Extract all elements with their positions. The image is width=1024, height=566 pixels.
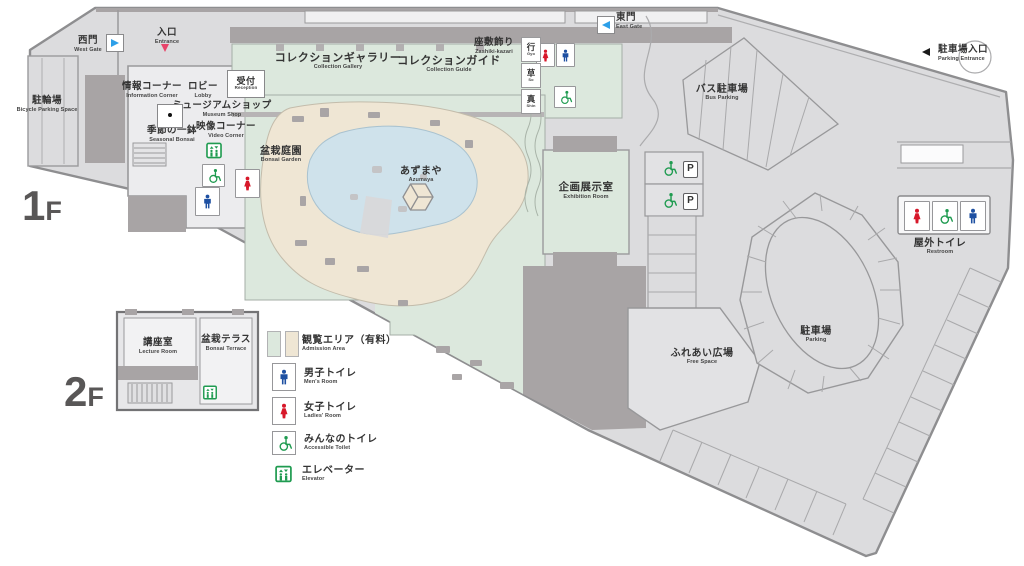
label-bonsai-garden: 盆栽庭園 Bonsai Garden [260,146,302,163]
parking-p-icon: P [683,193,698,210]
legend-ladies-room: 女子トイレ Ladies' Room [272,397,397,425]
label-bus-parking: バス駐車場 Bus Parking [696,84,749,101]
accessible-parking-icon [661,192,678,209]
ladies-room-icon [904,201,930,231]
legend-admission-area: 観覧エリア（有料） Admission Area [272,331,397,357]
elevator-icon [272,461,294,487]
legend-mens-room: 男子トイレ Men's Room [272,363,397,391]
label-bicycle-parking: 駐輪場 Bicycle Parking Space [17,96,78,113]
label-parking: 駐車場 Parking [800,326,832,343]
parking-column [648,216,696,310]
elevator-icon [205,140,223,161]
museum-floor-map: 受付 Reception 行 Gyo 草 So 真 Shin P P 1F 2F… [0,0,1024,566]
label-bonsai-terrace: 盆栽テラス Bonsai Terrace [201,335,251,352]
mens-room-icon [195,187,220,216]
exhibition-room-area [543,150,629,254]
room-gyo: 行 Gyo [521,37,541,62]
label-seasonal-bonsai: 季節の一鉢 Seasonal Bonsai [147,126,197,143]
accessible-toilet-icon [202,164,225,187]
elevator-icon [202,383,218,402]
label-lobby: ロビー Lobby [188,82,218,99]
label-entrance: 入口 Entrance [155,28,179,45]
accessible-toilet-icon [554,86,576,108]
reception-box: 受付 Reception [227,70,265,98]
pond [307,126,477,235]
west-gate-arrow-icon [111,39,119,47]
admission-beige-swatch [285,331,299,357]
admission-green-swatch [267,331,281,357]
floor-2f-label: 2F [64,368,104,416]
floor2-plan [117,309,258,410]
ladies-room-icon [235,169,260,198]
label-zashiki-kazari: 座敷飾り Zashiki-kazari [474,38,514,55]
east-gate-marker [597,16,615,34]
stairs-1f [133,143,166,166]
label-collection-guide: コレクションガイド Collection Guide [397,55,501,73]
map-legend: 観覧エリア（有料） Admission Area 男子トイレ Men's Roo… [272,331,397,487]
label-exhibition-room: 企画展示室 Exhibition Room [559,182,614,200]
legend-accessible-toilet: みんなのトイレ Accessible Toilet [272,431,397,455]
label-outdoor-toilet: 屋外トイレ Restroom [914,238,967,255]
room-shin: 真 Shin [521,89,541,114]
accessible-toilet-icon [932,201,958,231]
mens-room-icon [960,201,986,231]
accessible-parking-icon [661,160,678,177]
entrance-arrow-icon [161,44,169,52]
label-parking-entrance: 駐車場入口 Parking Entrance [938,45,988,62]
legend-elevator: エレベーター Elevator [272,461,397,487]
ladies-room-icon [272,397,296,425]
label-free-space: ふれあい広場 Free Space [671,348,734,365]
parking-p-icon: P [683,161,698,178]
admission-area-swatches [272,331,294,357]
west-gate-marker [106,34,124,52]
label-west-gate: 西門 West Gate [74,36,102,53]
azumaya-gazebo [403,184,433,210]
label-east-gate: 東門 East Gate [616,13,642,30]
room-so: 草 So [521,63,541,88]
seasonal-bonsai-display [157,104,183,128]
accessible-toilet-icon [272,431,296,455]
label-lecture-room: 講座室 Lecture Room [139,338,177,355]
label-museum-shop: ミュージアムショップ Museum Shop [172,101,271,118]
label-video-corner: 映像コーナー Video Corner [196,122,256,139]
mens-room-icon [556,43,575,67]
label-collection-gallery: コレクションギャラリー Collection Gallery [275,52,402,70]
label-azumaya: あずまや Azumaya [400,166,442,183]
parking-entrance-arrow-icon [922,48,930,56]
mens-room-icon [272,363,296,391]
west-wing-block [85,75,125,163]
east-gate-arrow-icon [602,21,610,29]
label-info-corner: 情報コーナー Information Corner [122,82,182,99]
floor-1f-label: 1F [22,182,62,230]
